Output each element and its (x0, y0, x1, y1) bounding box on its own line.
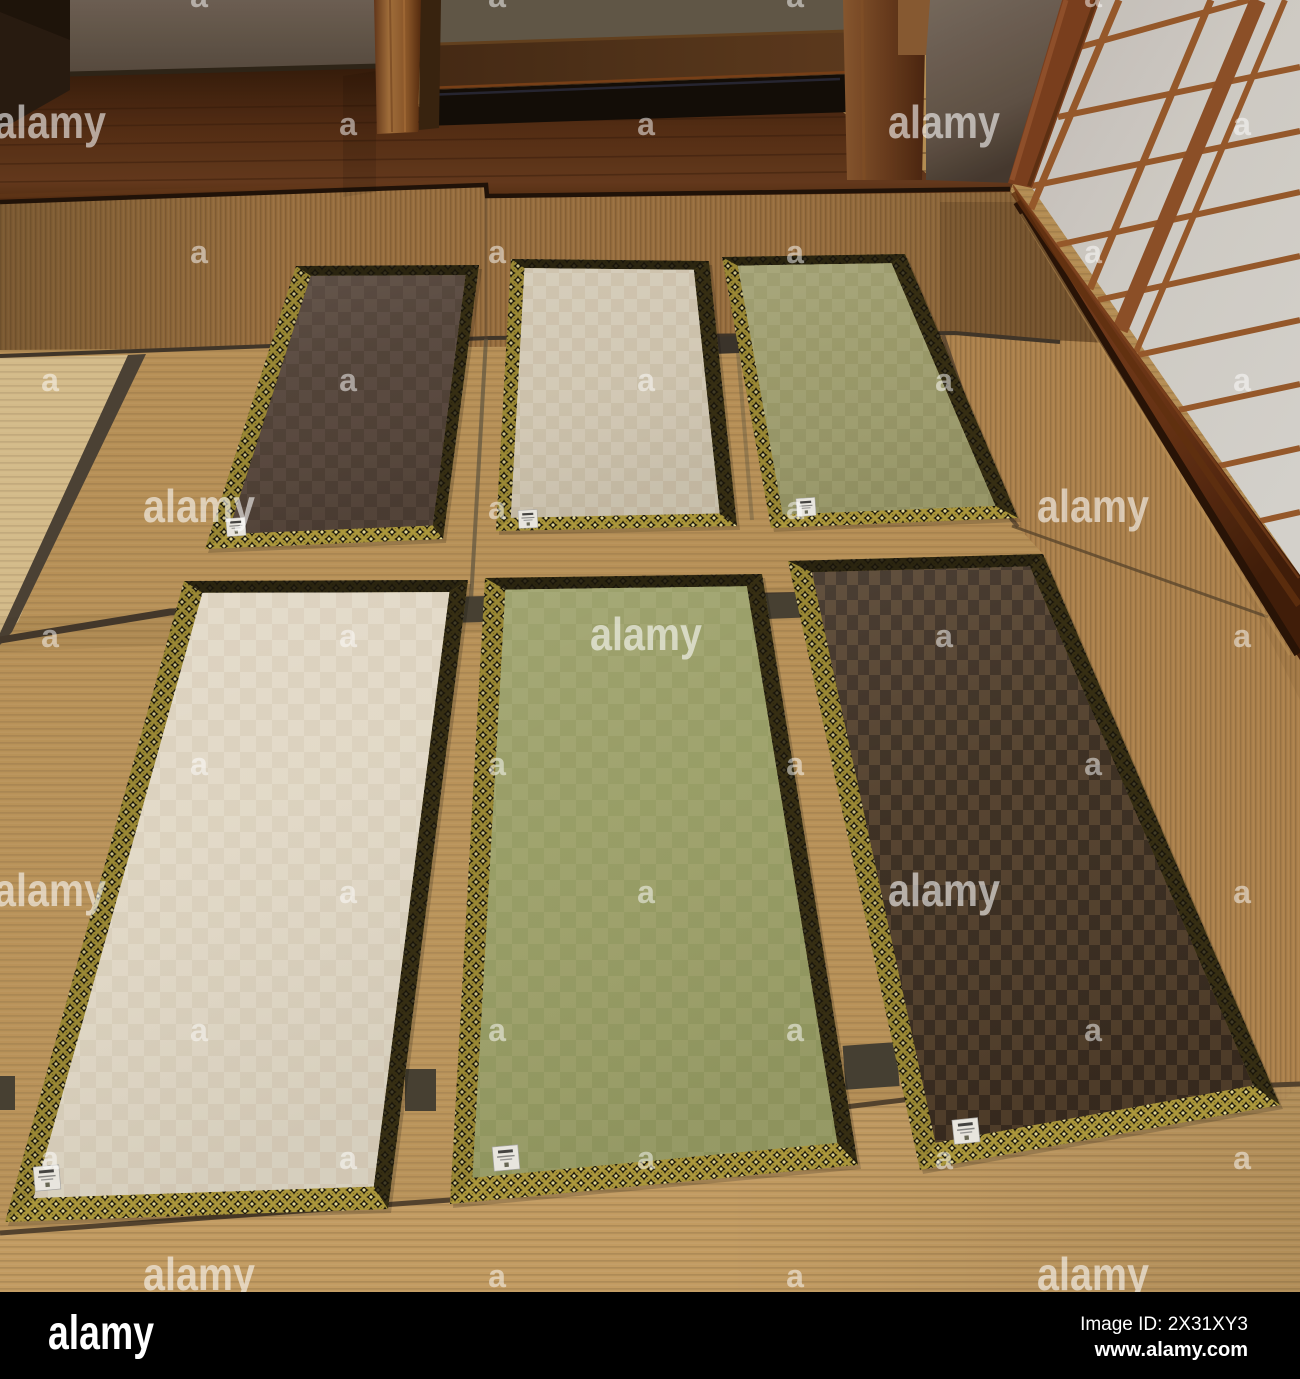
svg-text:a: a (1233, 106, 1251, 142)
svg-text:a: a (488, 746, 506, 782)
svg-text:a: a (41, 618, 59, 654)
svg-text:alamy: alamy (590, 608, 702, 660)
svg-text:a: a (339, 874, 357, 910)
svg-text:a: a (190, 746, 208, 782)
svg-text:alamy: alamy (143, 480, 255, 532)
svg-text:a: a (488, 490, 506, 526)
svg-text:alamy: alamy (888, 864, 1000, 916)
svg-text:a: a (637, 874, 655, 910)
svg-text:a: a (190, 1012, 208, 1048)
svg-text:a: a (339, 618, 357, 654)
svg-text:a: a (1084, 1012, 1102, 1048)
svg-text:alamy: alamy (48, 1307, 154, 1360)
svg-text:a: a (488, 0, 506, 14)
svg-text:a: a (786, 490, 804, 526)
svg-text:a: a (1233, 618, 1251, 654)
svg-text:alamy: alamy (1037, 480, 1149, 532)
svg-text:alamy: alamy (0, 864, 106, 916)
svg-text:a: a (1233, 362, 1251, 398)
svg-text:www.alamy.com: www.alamy.com (1094, 1339, 1248, 1361)
svg-text:a: a (1233, 874, 1251, 910)
svg-text:a: a (637, 362, 655, 398)
svg-text:a: a (1084, 0, 1102, 14)
svg-text:a: a (786, 1258, 804, 1294)
svg-text:a: a (786, 234, 804, 270)
svg-text:a: a (190, 0, 208, 14)
svg-text:a: a (41, 362, 59, 398)
svg-text:a: a (786, 0, 804, 14)
svg-text:a: a (41, 1140, 59, 1176)
svg-text:a: a (339, 1140, 357, 1176)
svg-text:a: a (190, 234, 208, 270)
svg-text:a: a (339, 362, 357, 398)
svg-text:a: a (786, 1012, 804, 1048)
svg-text:a: a (488, 234, 506, 270)
svg-text:Image ID: 2X31XY3: Image ID: 2X31XY3 (1080, 1314, 1248, 1335)
svg-text:a: a (637, 106, 655, 142)
svg-text:a: a (488, 1012, 506, 1048)
svg-text:alamy: alamy (888, 96, 1000, 148)
svg-text:a: a (488, 1258, 506, 1294)
svg-text:a: a (1233, 1140, 1251, 1176)
svg-text:a: a (935, 1140, 953, 1176)
svg-text:a: a (935, 362, 953, 398)
svg-text:a: a (786, 746, 804, 782)
svg-text:a: a (1084, 234, 1102, 270)
svg-text:alamy: alamy (0, 96, 106, 148)
svg-text:a: a (637, 1140, 655, 1176)
svg-text:a: a (935, 618, 953, 654)
svg-text:a: a (1084, 746, 1102, 782)
svg-text:a: a (339, 106, 357, 142)
